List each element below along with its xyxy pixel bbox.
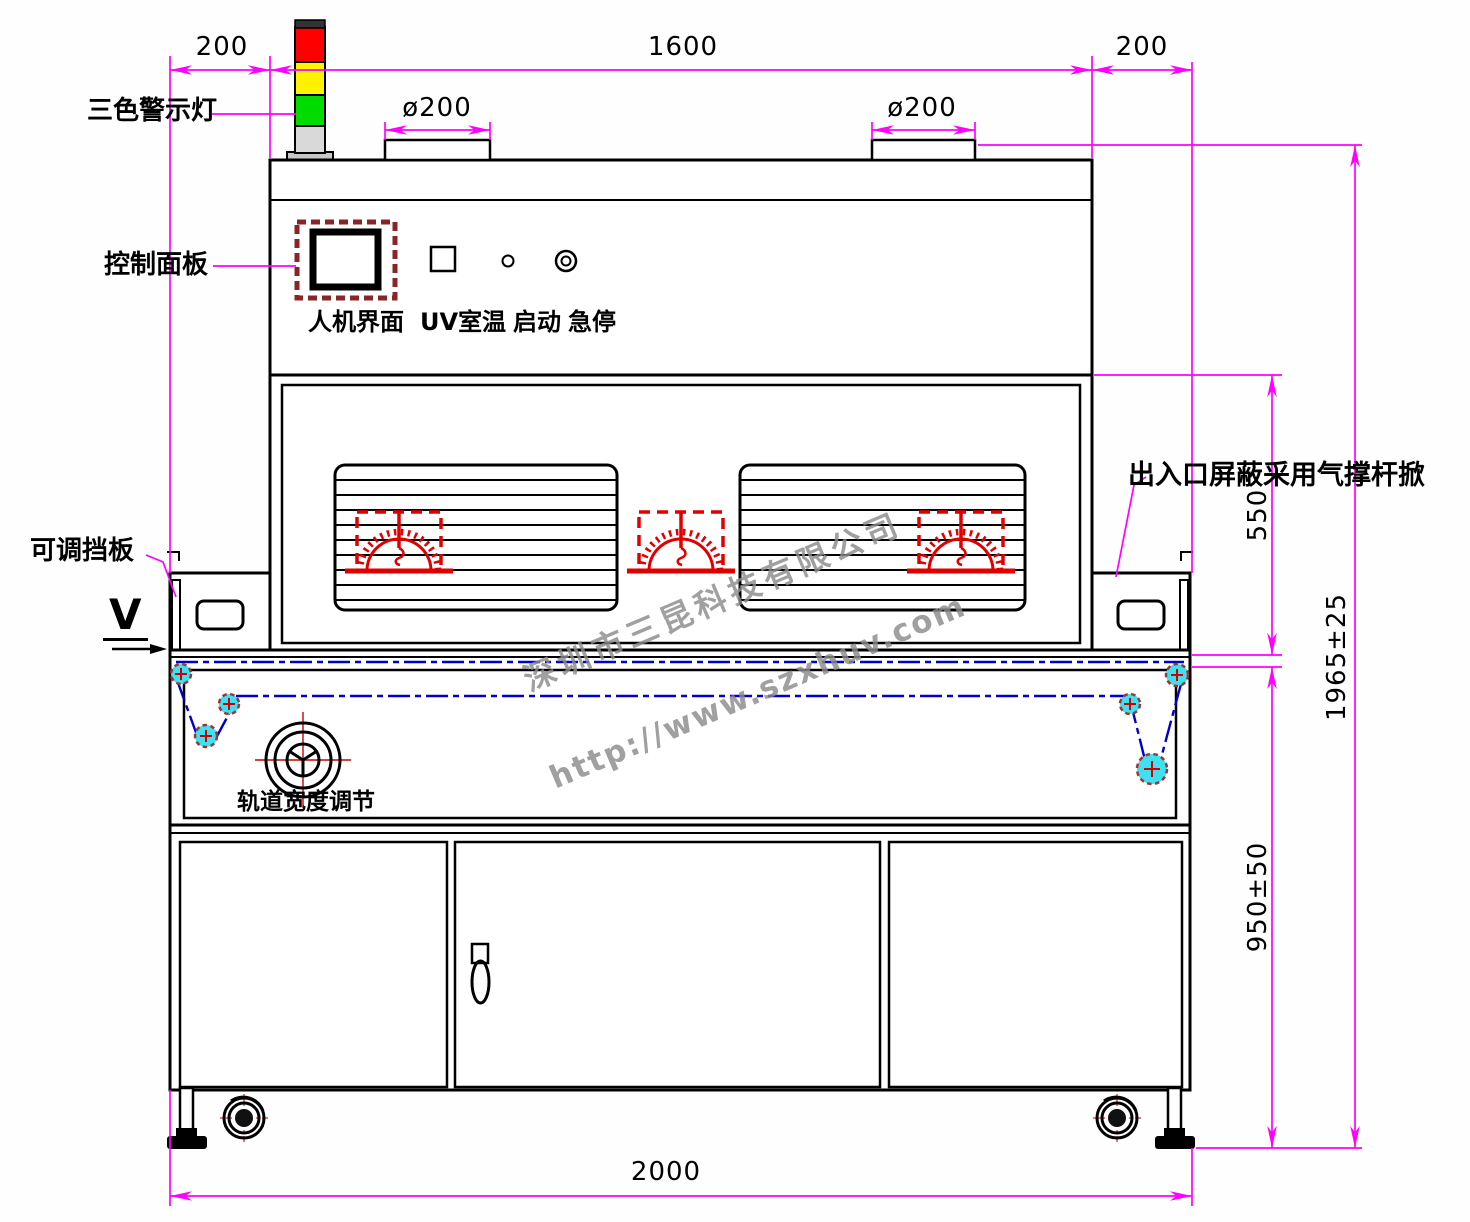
dim-chamber-height: 550 xyxy=(1245,489,1271,542)
leveling-foot-icon xyxy=(1155,1088,1195,1149)
hmi-screen xyxy=(313,232,378,287)
vent-duct-left xyxy=(385,140,490,160)
section-arrow xyxy=(112,644,167,654)
hmi-label: 人机界面 xyxy=(308,310,404,334)
dim-body-width: 1600 xyxy=(648,34,718,60)
leveling-foot-icon xyxy=(167,1088,207,1149)
dim-left-vent: ø200 xyxy=(402,95,472,121)
dim-left-offset: 200 xyxy=(196,34,249,60)
cad-drawing-canvas: 三色警示灯 控制面板 人机界面 UV室温 启动 急停 可调挡板 出入口屏蔽采用气… xyxy=(0,0,1470,1222)
track-width-label: 轨道宽度调节 xyxy=(237,791,375,814)
dim-right-vent: ø200 xyxy=(887,95,957,121)
start-button-icon xyxy=(503,256,514,267)
dim-right-offset: 200 xyxy=(1116,34,1169,60)
cabinet-door-left xyxy=(180,842,447,1087)
start-label: 启动 xyxy=(513,310,561,334)
section-v-marker: V xyxy=(103,594,148,641)
warning-light-label: 三色警示灯 xyxy=(87,98,217,124)
control-panel-label: 控制面板 xyxy=(104,252,208,278)
warning-tower-icon xyxy=(287,20,333,161)
uv-temp-label: UV室温 xyxy=(420,310,506,334)
vent-duct-right xyxy=(872,140,975,160)
dim-overall-height: 1965±25 xyxy=(1324,593,1350,721)
cabinet-door-middle xyxy=(455,842,880,1087)
lower-cabinet xyxy=(170,825,1190,1090)
uv-temp-display xyxy=(431,247,455,271)
dim-conveyor-height: 950±50 xyxy=(1245,842,1271,953)
dim-overall-width: 2000 xyxy=(631,1159,701,1185)
cabinet-door-right xyxy=(889,842,1182,1087)
side-platform-left xyxy=(167,552,270,652)
estop-label: 急停 xyxy=(568,310,616,334)
adjustable-baffle-label: 可调挡板 xyxy=(30,538,134,564)
side-platform-right xyxy=(1092,552,1193,652)
entry-exit-shield-label: 出入口屏蔽采用气撑杆掀 xyxy=(1128,462,1425,489)
caster-icon xyxy=(1093,1094,1141,1142)
estop-button-inner xyxy=(562,257,571,266)
caster-icon xyxy=(220,1094,268,1142)
